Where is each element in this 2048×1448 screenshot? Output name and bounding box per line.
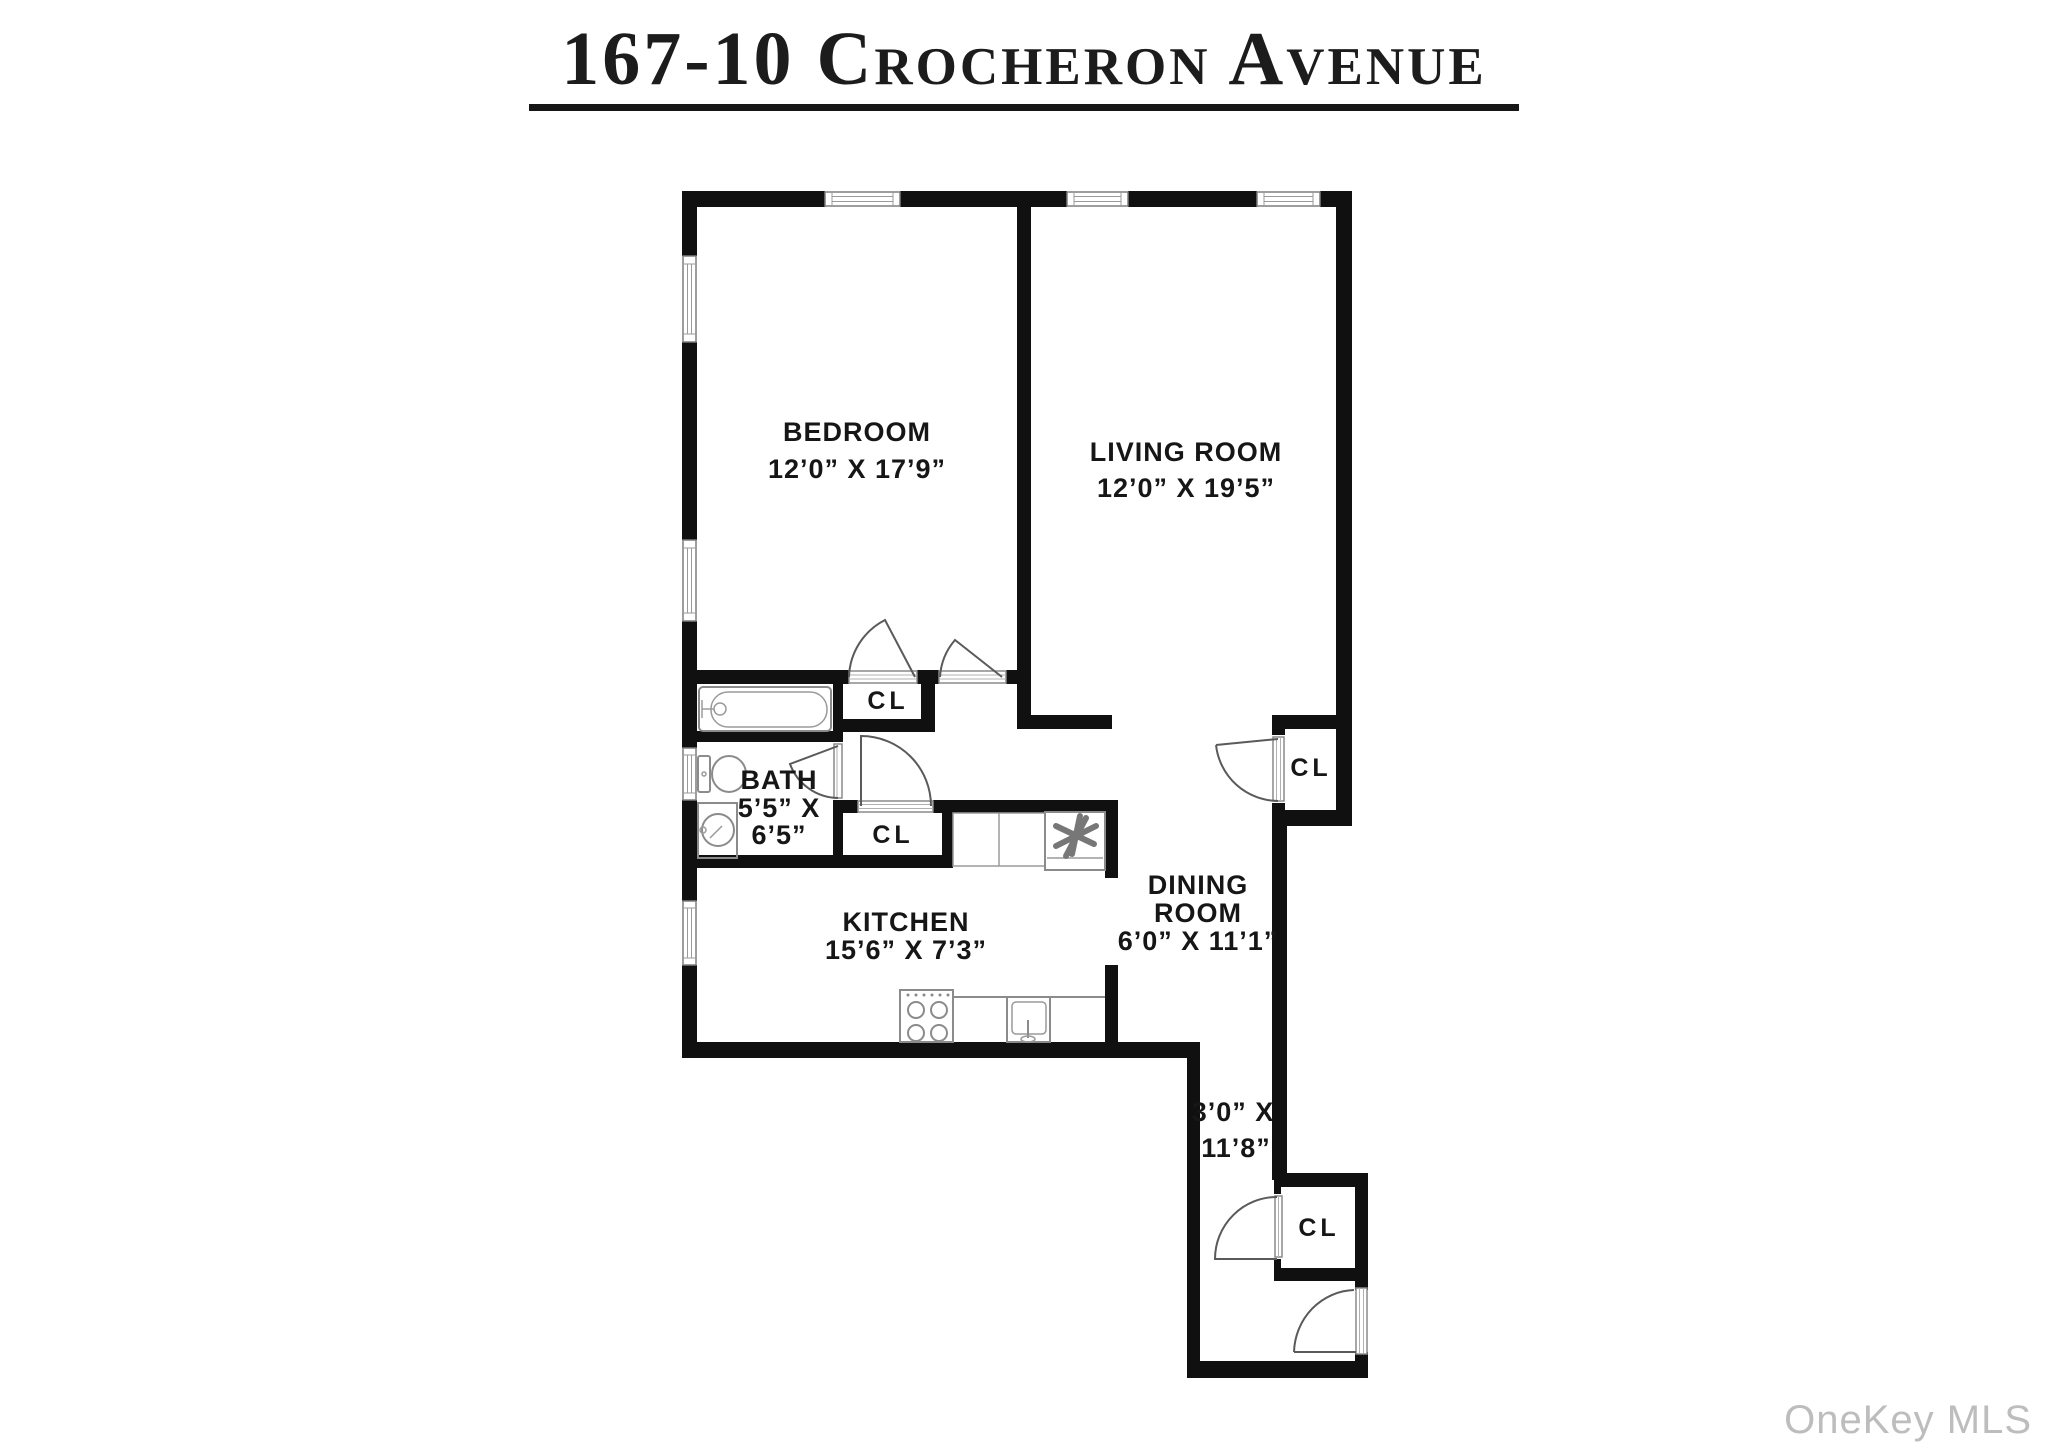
entry-closet-label: CL (1298, 1214, 1339, 1242)
bath-window (683, 748, 696, 800)
living-top-window-1 (1067, 192, 1128, 206)
dining-room-dims: 6’0” X 11’1” (1118, 926, 1279, 956)
living-room-label: LIVING ROOM (1090, 437, 1283, 467)
bedroom-side-window-2 (683, 540, 696, 621)
dining-room-label-line1: DINING (1148, 870, 1249, 900)
hall-cabinet (953, 813, 1045, 866)
bedroom-dims: 12’0” X 17’9” (768, 454, 946, 484)
floorplan-page: 167-10 Crocheron Avenue (0, 0, 2048, 1448)
stove (900, 990, 953, 1042)
bath-dims-line1: 5’5” X (738, 793, 821, 823)
dining-closet-door-swing (1216, 739, 1278, 801)
kitchen-dims: 15’6” X 7’3” (825, 935, 987, 965)
bedroom-top-window (825, 192, 900, 206)
kitchen-label: KITCHEN (843, 907, 970, 937)
watermark: OneKey MLS (1784, 1398, 2032, 1443)
hall-closet-label: CL (872, 821, 913, 849)
fan-unit (1045, 812, 1105, 870)
title-block: 167-10 Crocheron Avenue (0, 18, 2048, 111)
dining-closet-label: CL (1290, 754, 1331, 782)
kitchen-sink (953, 997, 1105, 1042)
bath-dims-line2: 6’5” (751, 820, 806, 850)
page-title: 167-10 Crocheron Avenue (0, 18, 2048, 102)
living-room-dims: 12’0” X 19’5” (1097, 473, 1275, 503)
dining-room-label-line2: ROOM (1154, 898, 1242, 928)
bath-sink (698, 803, 737, 858)
hall-dims-line1: 3’0” X (1192, 1097, 1275, 1127)
toilet (698, 756, 746, 792)
hall-dims-line2: 11’8” (1201, 1133, 1271, 1163)
floorplan-drawing: BEDROOM 12’0” X 17’9” LIVING ROOM 12’0” … (0, 0, 2048, 1448)
bedroom-closet-label: CL (867, 687, 908, 715)
bedroom-closet-door-swing (849, 620, 915, 677)
kitchen-window (683, 901, 696, 965)
entry-closet-door-swing (1215, 1197, 1277, 1259)
bath-label: BATH (741, 765, 818, 795)
entry-door-swing (1294, 1290, 1356, 1352)
hall-closet-door-swing (861, 736, 931, 806)
bedroom-side-window-1 (683, 256, 696, 342)
living-top-window-2 (1257, 192, 1320, 206)
title-underline (529, 104, 1519, 111)
bathtub (699, 687, 831, 731)
room-labels: BEDROOM 12’0” X 17’9” LIVING ROOM 12’0” … (738, 417, 1340, 1242)
door-frames (834, 671, 1367, 1354)
bedroom-label: BEDROOM (783, 417, 931, 447)
